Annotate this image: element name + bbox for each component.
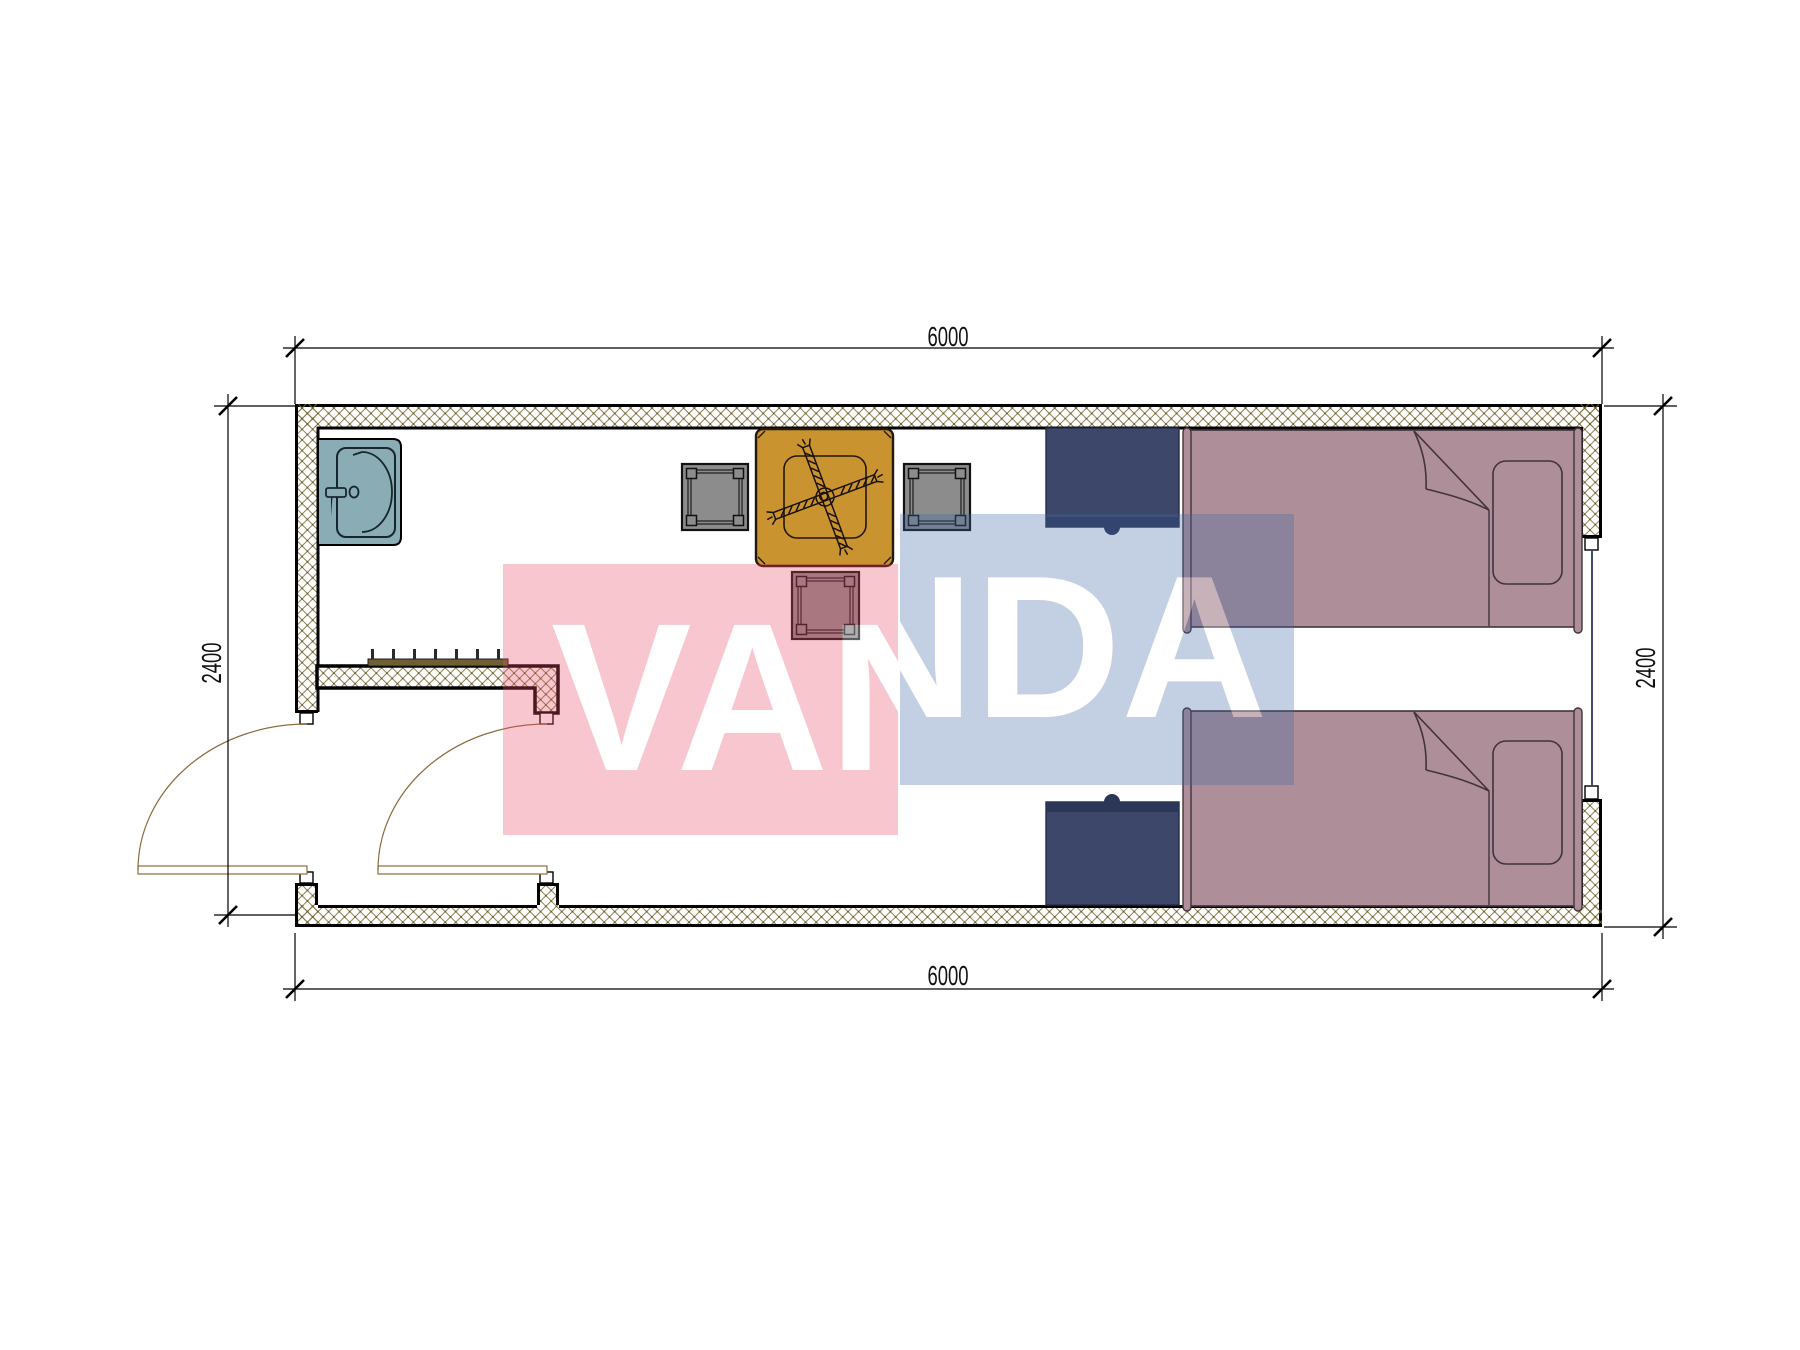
svg-text:2400: 2400 (197, 642, 228, 683)
svg-text:6000: 6000 (927, 961, 968, 992)
svg-text:2400: 2400 (1631, 647, 1662, 688)
svg-text:6000: 6000 (927, 322, 968, 353)
